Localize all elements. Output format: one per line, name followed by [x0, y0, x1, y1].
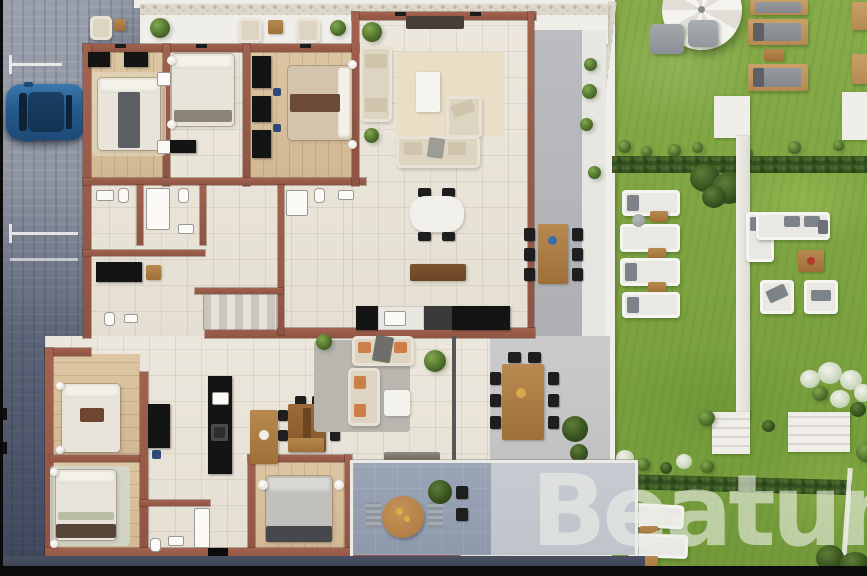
bed-runner [290, 94, 340, 112]
outdoor-armchair [804, 280, 838, 314]
sun-lounger [748, 64, 808, 91]
dining-chair [418, 232, 431, 241]
terrace-dining-table [538, 224, 568, 284]
garden-steps [712, 412, 750, 454]
window-frame [395, 12, 406, 16]
lounger-pillow [627, 195, 639, 211]
nightstand [157, 140, 171, 154]
terrace-chair [572, 268, 583, 281]
garden-pad [842, 92, 867, 140]
bathtub [146, 188, 170, 230]
chair [152, 450, 161, 459]
lounger-cushion [755, 2, 801, 13]
outdoor-table [798, 250, 824, 272]
terrace-chair [524, 268, 535, 281]
bed [98, 78, 160, 150]
balcony-round-table [382, 496, 424, 538]
terrace-chair [508, 352, 521, 363]
cushion [365, 98, 387, 112]
bed [172, 54, 234, 126]
terrace-chair [548, 372, 559, 385]
bathroom-sink [96, 190, 114, 201]
wall [352, 12, 359, 186]
terrace-chair [548, 416, 559, 429]
bed-throw [80, 408, 104, 422]
dining-chair [278, 410, 288, 421]
dresser [124, 52, 148, 67]
balcony-chair [428, 502, 443, 528]
bowl [516, 388, 526, 398]
bathroom-sink [178, 224, 194, 234]
car-windshield [19, 93, 27, 131]
wall [50, 455, 145, 462]
parking-line-cap [9, 55, 12, 74]
window-frame [470, 12, 481, 16]
stove [211, 424, 228, 441]
flower-bush [818, 362, 842, 384]
terrace-chair [524, 228, 535, 241]
bedside-lamp [348, 140, 357, 149]
patio-chair [650, 24, 684, 54]
bed [266, 476, 332, 542]
garden-sphere [632, 214, 645, 227]
bedside-lamp [167, 56, 176, 65]
wall [243, 44, 250, 186]
sofa [360, 46, 392, 122]
potted-plant [330, 20, 346, 36]
terrace-chair [490, 394, 501, 407]
sun-lounger [622, 292, 680, 318]
sideboard [410, 264, 466, 281]
balcony-chair [366, 502, 381, 528]
chair [273, 88, 281, 96]
shower [286, 190, 308, 216]
terrace-chair [572, 248, 583, 261]
throw-blanket [427, 137, 446, 159]
bench [170, 140, 196, 153]
bush [850, 402, 866, 417]
cushion [404, 142, 422, 155]
plate [396, 508, 403, 515]
shower [194, 508, 210, 548]
patio-chair [688, 20, 718, 47]
bush [692, 142, 703, 153]
car-mirror [24, 82, 33, 87]
bush [762, 420, 775, 432]
bed-pillows [64, 386, 118, 398]
bedside-lamp [50, 540, 58, 548]
outdoor-armchair [760, 280, 794, 314]
bed-throw [174, 110, 232, 122]
balcony-chair [456, 486, 468, 499]
terrace-chair [490, 416, 501, 429]
bed-pillows [268, 478, 330, 492]
sun-lounger-clipped [852, 2, 867, 30]
bush [584, 58, 597, 71]
balcony-chair [456, 508, 468, 521]
toilet [104, 312, 115, 326]
terrace-chair [572, 228, 583, 241]
bed [56, 470, 116, 540]
side-table [764, 49, 784, 61]
throw-blanket [372, 335, 394, 364]
floor-plan-render: Beatum doo [0, 0, 867, 576]
watermark-text: Beatum doo [531, 454, 867, 569]
potted-plant [362, 22, 382, 42]
plate [807, 257, 815, 265]
bed [288, 66, 352, 140]
side-table [650, 211, 668, 222]
kitchen-sink [212, 392, 229, 405]
garden-steps [788, 412, 850, 452]
bowl [259, 430, 269, 440]
bed-foot-bench [266, 526, 332, 542]
sofa [348, 368, 380, 426]
bush [582, 84, 597, 99]
kitchen-island [250, 410, 278, 464]
kitchen-counter [452, 306, 510, 330]
car-mirror [24, 137, 33, 142]
lounger-pillow [753, 68, 764, 87]
bush [833, 140, 844, 151]
terrace-chair [548, 394, 559, 407]
dining-table [410, 196, 464, 232]
terrace-chair [490, 372, 501, 385]
bedside-lamp [56, 446, 64, 454]
nightstand [157, 72, 171, 86]
wall-lamp [334, 480, 344, 490]
sofa [352, 336, 414, 366]
parking-line [10, 258, 78, 261]
bush [580, 118, 593, 131]
bush [788, 141, 801, 154]
kitchenette-counter [96, 262, 142, 282]
terrace-chair [524, 248, 535, 261]
terrace-armchair [90, 16, 112, 40]
terrace-chair [528, 352, 541, 363]
parking-line-cap [9, 224, 12, 243]
wall [200, 185, 206, 245]
wall [83, 250, 205, 256]
wall [528, 12, 534, 336]
console-desk [288, 438, 324, 452]
dining-chair [442, 232, 455, 241]
flower-bush [830, 390, 850, 408]
bed-pillows [174, 56, 232, 69]
coffee-table [384, 390, 410, 416]
terrace-table [268, 20, 283, 34]
bush [588, 166, 601, 179]
toilet [314, 188, 325, 203]
kitchenette-box [146, 265, 161, 280]
outdoor-sofa [756, 212, 830, 240]
dresser [88, 52, 110, 67]
wardrobe [252, 130, 271, 158]
toilet [150, 538, 161, 552]
wall [248, 455, 255, 555]
terrace-armchair [296, 18, 320, 43]
kitchen-counter [356, 306, 378, 330]
kitchen-sink [384, 311, 406, 326]
car-rear-window [66, 95, 72, 129]
potted-plant [428, 480, 452, 504]
wall [140, 500, 210, 506]
coffee-table [416, 72, 440, 112]
window-frame [196, 44, 207, 48]
cushion [450, 99, 475, 119]
lounger-pillow [627, 297, 639, 313]
glass-wall [452, 336, 456, 462]
wall [137, 185, 143, 245]
tv-console [406, 16, 464, 29]
umbrella-pole [698, 6, 705, 13]
side-walkway [582, 30, 606, 336]
bathroom-sink [168, 536, 184, 546]
wardrobe [252, 96, 271, 122]
dining-chair [278, 430, 288, 441]
window-frame [300, 44, 311, 48]
window-frame [115, 44, 126, 48]
wall [278, 185, 284, 335]
staircase [203, 294, 277, 330]
chair [273, 124, 281, 132]
sun-lounger [750, 0, 808, 15]
bush [698, 410, 715, 426]
bathroom-sink [124, 314, 138, 323]
cushion [365, 54, 387, 68]
bed-foot-bench [56, 524, 116, 538]
potted-plant [424, 350, 446, 372]
wardrobe [252, 56, 271, 88]
bedside-lamp [348, 60, 357, 69]
tree [702, 186, 726, 208]
sun-lounger [748, 19, 808, 45]
car-roof [28, 92, 64, 132]
lounger-pillow [753, 23, 764, 41]
bedside-lamp [56, 382, 64, 390]
toilet [118, 188, 129, 203]
potted-plant [364, 128, 379, 143]
parking-line [10, 232, 78, 235]
car [6, 84, 84, 140]
plate [404, 516, 410, 522]
bed-throw [58, 512, 114, 520]
kitchen-counter [424, 306, 452, 330]
bowl [548, 236, 557, 245]
wall [83, 44, 91, 338]
desk [148, 404, 170, 448]
terrace-table [114, 19, 126, 31]
lounger-pillow [625, 263, 637, 281]
wall [140, 372, 148, 556]
bedside-lamp [50, 468, 58, 476]
terrace-armchair [238, 18, 262, 43]
wall-lamp [258, 480, 268, 490]
terrace-dining-table [502, 364, 544, 440]
sofa [396, 136, 480, 168]
parking-line [10, 63, 62, 66]
bush [618, 140, 631, 153]
wall [83, 178, 366, 185]
sun-lounger-clipped [852, 54, 867, 84]
bush [812, 386, 828, 401]
cushion [448, 142, 466, 155]
bed [62, 384, 120, 452]
flower-bush [854, 384, 867, 402]
bathroom-sink [338, 190, 354, 200]
cushion [765, 283, 789, 303]
toilet [178, 188, 189, 203]
bed-pillows [58, 472, 114, 484]
accent-pillow [354, 376, 366, 389]
cushion [818, 220, 828, 234]
left-black-bar [0, 0, 3, 576]
path-pad [714, 96, 750, 138]
bed-runner [118, 92, 140, 148]
cushion [784, 216, 800, 227]
chaise [446, 96, 482, 138]
garden-path [736, 136, 750, 418]
potted-plant [316, 334, 332, 350]
watermark: Beatum doo [531, 462, 867, 572]
potted-plant [150, 18, 170, 38]
accent-pillow [394, 342, 407, 353]
cushion [811, 290, 831, 301]
accent-pillow [358, 342, 371, 353]
bush [562, 416, 588, 442]
bedside-lamp [167, 120, 176, 129]
accent-pillow [354, 404, 366, 417]
